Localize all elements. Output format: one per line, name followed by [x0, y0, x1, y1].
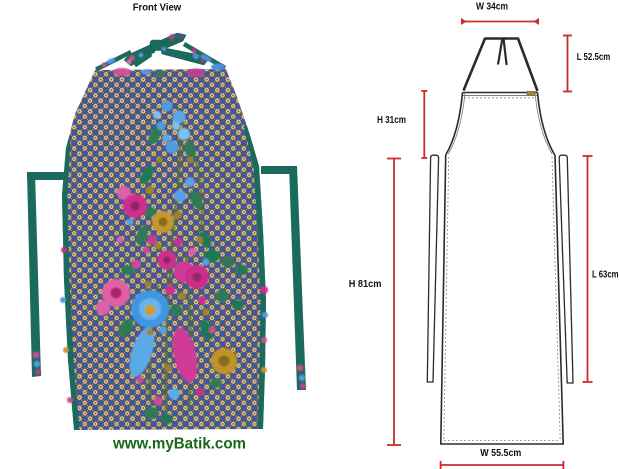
svg-text:www.myBatik.com: www.myBatik.com: [112, 435, 246, 452]
svg-text:L 52.5cm: L 52.5cm: [577, 52, 611, 63]
svg-text:H 81cm: H 81cm: [349, 279, 382, 290]
svg-text:H 31cm: H 31cm: [377, 115, 406, 126]
svg-text:L 63cm: L 63cm: [592, 270, 619, 281]
svg-text:Front View: Front View: [133, 2, 182, 13]
svg-text:W 55.5cm: W 55.5cm: [480, 448, 521, 459]
svg-text:W 34cm: W 34cm: [476, 2, 508, 13]
